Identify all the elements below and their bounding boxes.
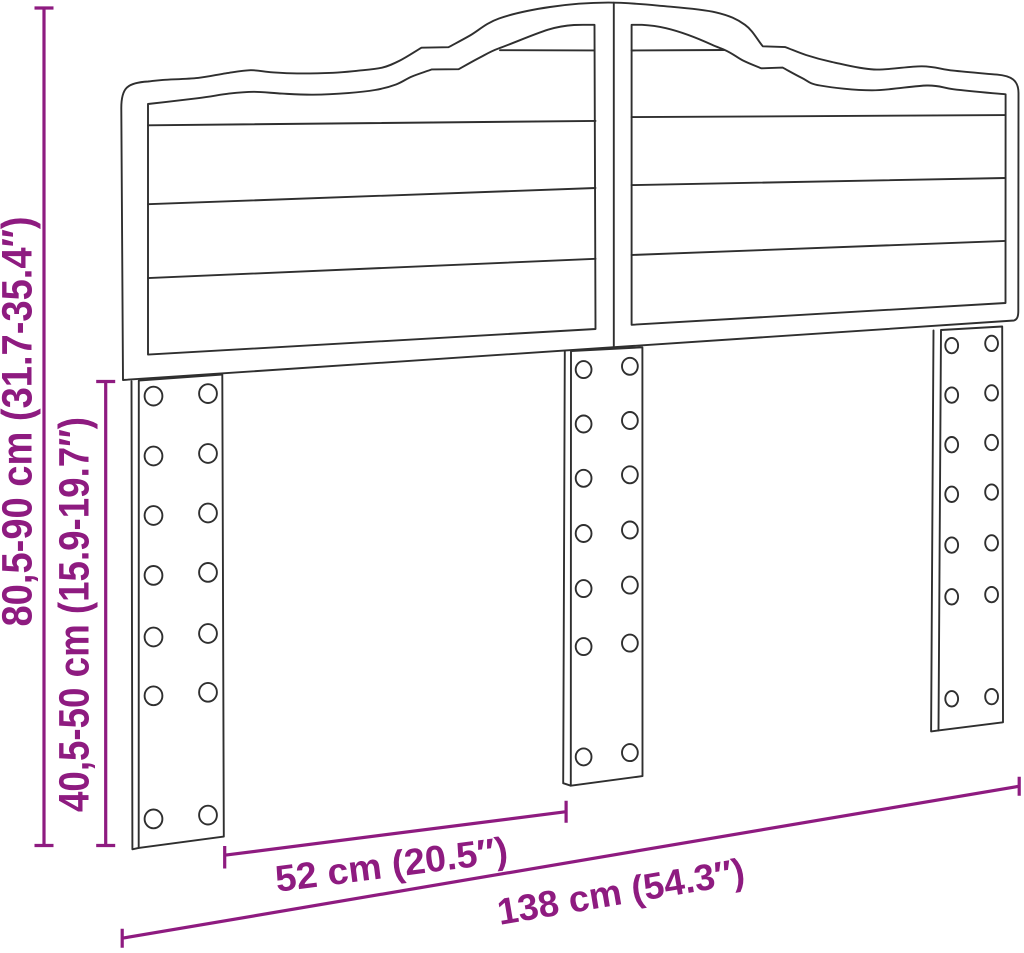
svg-text:80,5-90 cm (31.7-35.4″): 80,5-90 cm (31.7-35.4″) bbox=[0, 217, 42, 627]
svg-text:52 cm (20.5″): 52 cm (20.5″) bbox=[273, 829, 510, 899]
svg-text:138 cm (54.3″): 138 cm (54.3″) bbox=[494, 851, 747, 933]
svg-text:40,5-50 cm (15.9-19.7″): 40,5-50 cm (15.9-19.7″) bbox=[52, 417, 99, 812]
